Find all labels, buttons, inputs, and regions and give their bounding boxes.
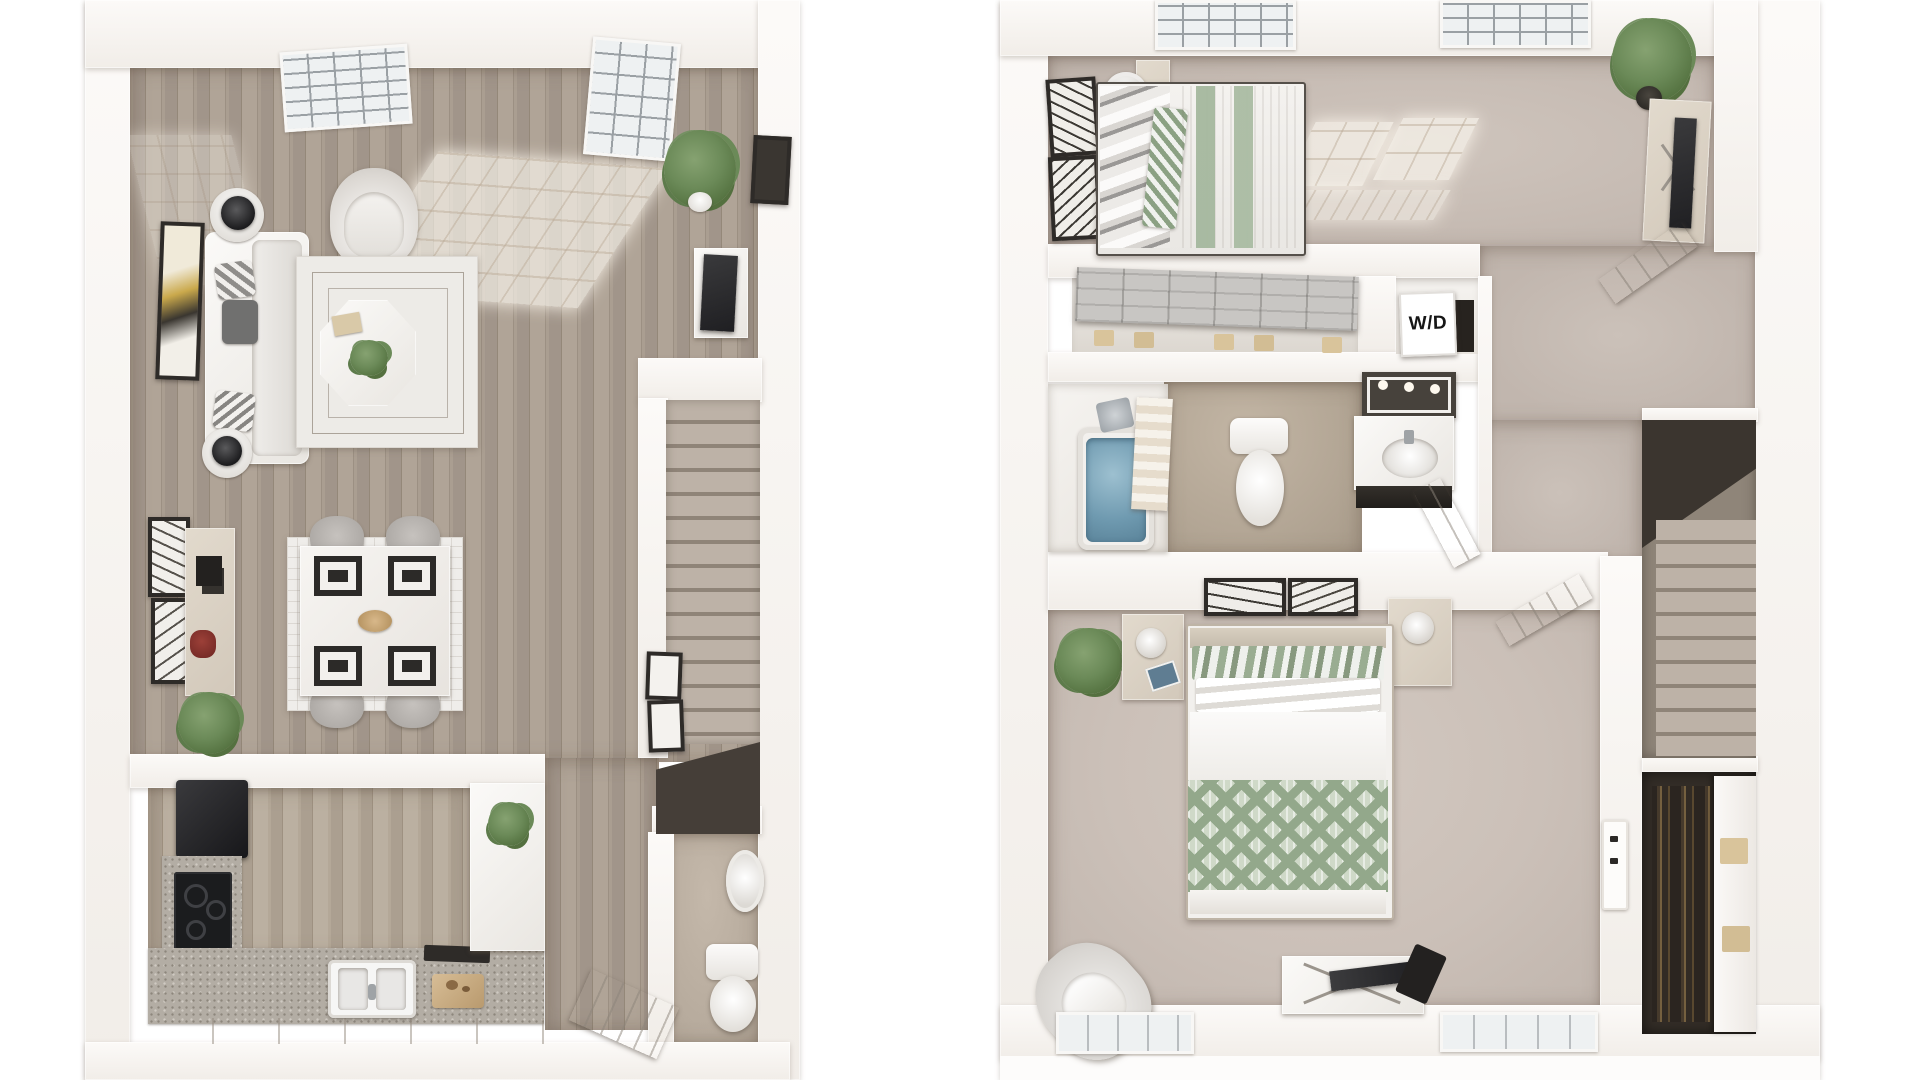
vanity-mirror [1362,372,1456,418]
floor-plan-image: W/D [0,0,1920,1080]
toilet-bowl [1236,450,1284,526]
bedroom1-window-2 [1440,0,1591,48]
light-switch-panel [1602,820,1628,910]
vanity-faucet [1404,430,1414,444]
vanity-lights [1378,380,1388,390]
p2-foundation-base [1000,1056,1820,1080]
p2-left-exterior-wall [1000,0,1048,1080]
bedroom2-accent-pillows [1192,646,1384,680]
bedroom2-chevron-blanket [1188,780,1388,892]
bedroom1-art-1 [1045,76,1100,157]
bath-right-wall [1478,276,1492,566]
bedroom2-plant [1056,628,1122,694]
vanity-sink [1382,438,1438,478]
closet-sliding-panel [1714,776,1756,1032]
bedroom2-window-2 [1440,1012,1598,1052]
bedroom2-window-1 [1056,1012,1194,1054]
hanging-clothes [1652,786,1722,1022]
nightstand-left-lamp [1136,628,1166,658]
second-floor-plan: W/D [0,0,1920,1080]
bedroom1-window-1 [1155,0,1296,50]
nightstand-right-lamp [1402,612,1434,644]
sun-patch-3 [1283,190,1450,220]
stairwell-treads [1656,520,1756,756]
bedroom2-sheet [1190,712,1386,782]
washer-dryer-sign: W/D [1399,291,1457,357]
stair-bottom-wall-2 [1642,756,1758,772]
bedroom2-white-pillows [1196,678,1380,712]
switch-dots [1610,836,1618,842]
bedroom2-right-wall [1600,556,1642,1008]
closet-wd-divider [1356,276,1396,356]
p2-right-exterior-wall [1755,0,1820,1080]
bedroom1-right-wall [1714,0,1758,252]
bedroom2-headboard [1190,628,1386,648]
hall-landing-floor-2 [1478,420,1642,566]
bedroom2-art-1 [1204,578,1286,616]
closet-sliding-doors [1075,267,1359,331]
toilet-tank [1230,418,1288,454]
closet-panel-boxes [1720,838,1748,864]
bedroom2-art-2 [1288,578,1358,616]
bedroom1-duvet-stripes [1182,86,1300,248]
closet-shoe-boxes [1094,330,1114,346]
bedroom1-art-2 [1048,155,1102,242]
shower-screen [1131,397,1173,511]
bedroom2-foot-band [1190,890,1386,914]
